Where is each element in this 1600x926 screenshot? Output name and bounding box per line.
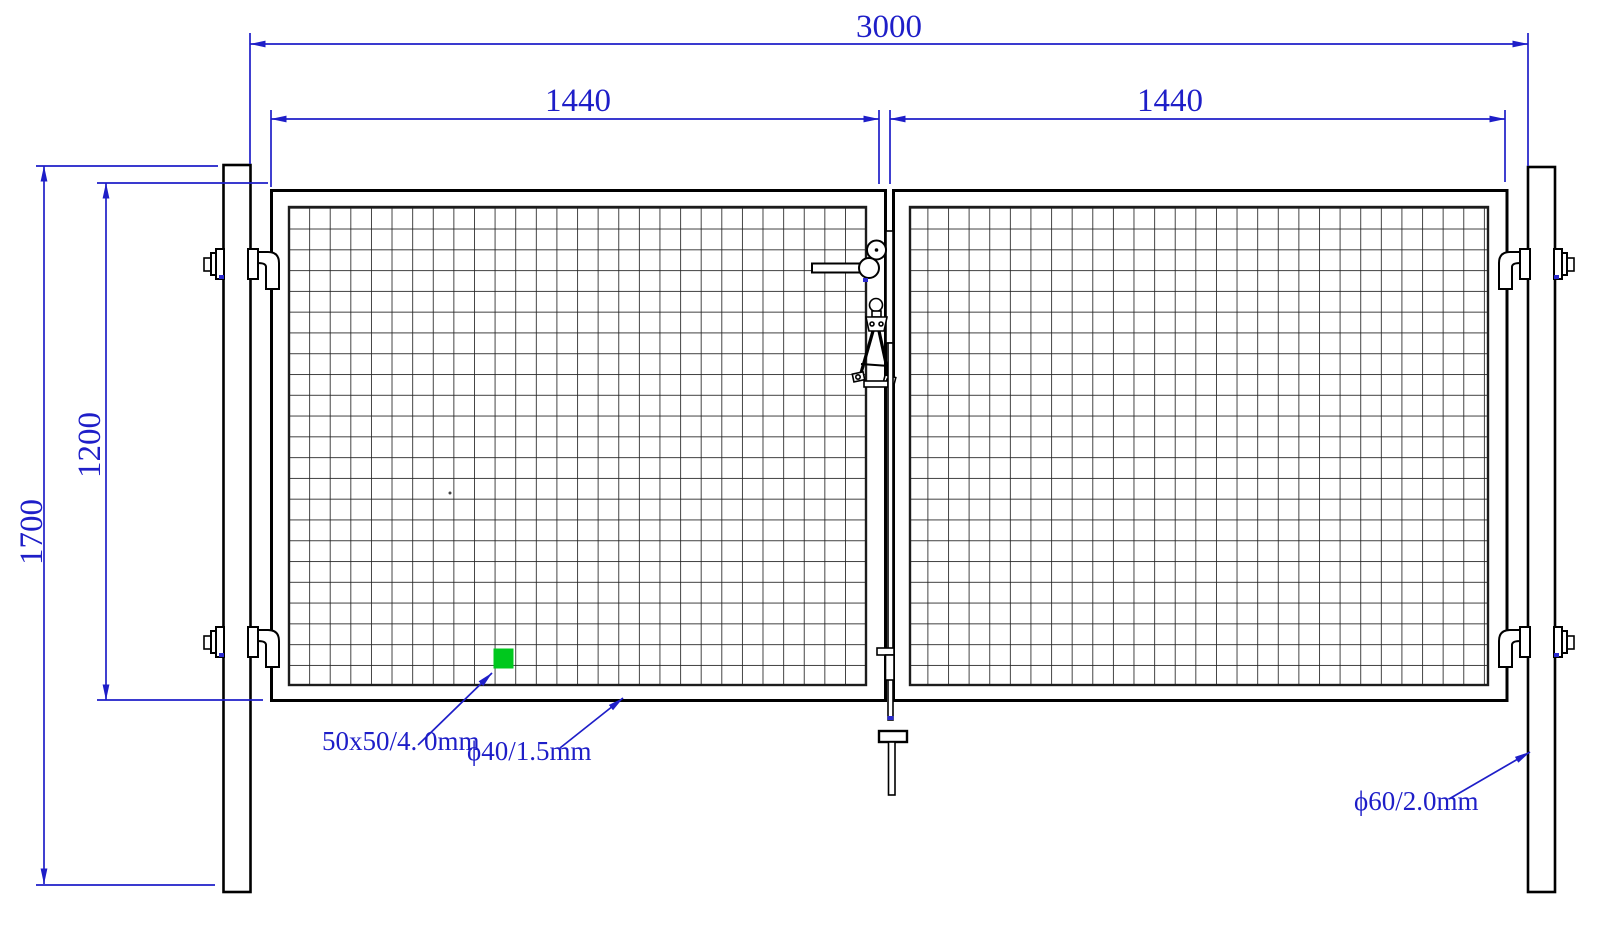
latch-knob [870, 299, 883, 312]
left-post [224, 165, 251, 892]
lock-plate [886, 231, 893, 343]
drop-rod-tip-mark [888, 716, 894, 720]
right-mesh-panel [910, 207, 1488, 685]
dimension-left-leaf-width: 1440 [271, 83, 879, 187]
gate-handle-bar [812, 264, 861, 273]
drop-rod-guide [886, 655, 895, 680]
hatch-tick [863, 278, 868, 282]
mesh-cell-highlight [494, 649, 514, 669]
dimension-right-leaf-width: 1440 [890, 83, 1505, 184]
hatch-tick [219, 275, 224, 279]
hatch-tick [1554, 275, 1559, 279]
dimension-post-height: 1700 [14, 166, 218, 885]
hatch-tick [219, 653, 224, 657]
left-gate-leaf [272, 191, 886, 701]
dim-post-height-value: 1700 [14, 499, 50, 565]
ground-catch [879, 731, 907, 795]
frame-spec-label: ϕ40/1.5mm [467, 736, 591, 766]
gate-drawing-page: 3000 1440 1440 1700 1200 50x50/4. 0mm ϕ4… [0, 0, 1600, 926]
drop-rod-bracket [877, 648, 894, 655]
lock-head-pin [875, 248, 879, 252]
post-spec-label: ϕ60/2.0mm [1354, 786, 1478, 816]
latch-stem [872, 311, 881, 317]
dim-right-leaf-width-value: 1440 [1137, 83, 1203, 119]
dim-left-leaf-width-value: 1440 [545, 83, 611, 119]
right-post [1528, 167, 1555, 892]
callout-post-spec: ϕ60/2.0mm [1354, 752, 1530, 816]
mesh-spec-label: 50x50/4. 0mm [322, 726, 480, 756]
callout-frame-spec: ϕ40/1.5mm [467, 698, 623, 766]
latch-plate [866, 317, 887, 331]
dim-leaf-height-value: 1200 [72, 412, 108, 478]
hatch-tick [1554, 653, 1559, 657]
dim-overall-width-value: 3000 [856, 9, 922, 45]
latch-base [864, 381, 888, 387]
ground-catch-head [879, 731, 907, 742]
gate-handle-knob [859, 258, 879, 278]
latch-screw [870, 322, 874, 326]
dimension-overall-width: 3000 [250, 9, 1528, 166]
left-mesh-panel [289, 207, 866, 685]
stray-mark [449, 492, 452, 495]
latch-screw [856, 375, 860, 379]
latch-screw [879, 322, 883, 326]
gate-drawing-canvas: 3000 1440 1440 1700 1200 50x50/4. 0mm ϕ4… [0, 0, 1600, 926]
right-gate-leaf [894, 191, 1508, 701]
ground-catch-stem [889, 742, 896, 795]
